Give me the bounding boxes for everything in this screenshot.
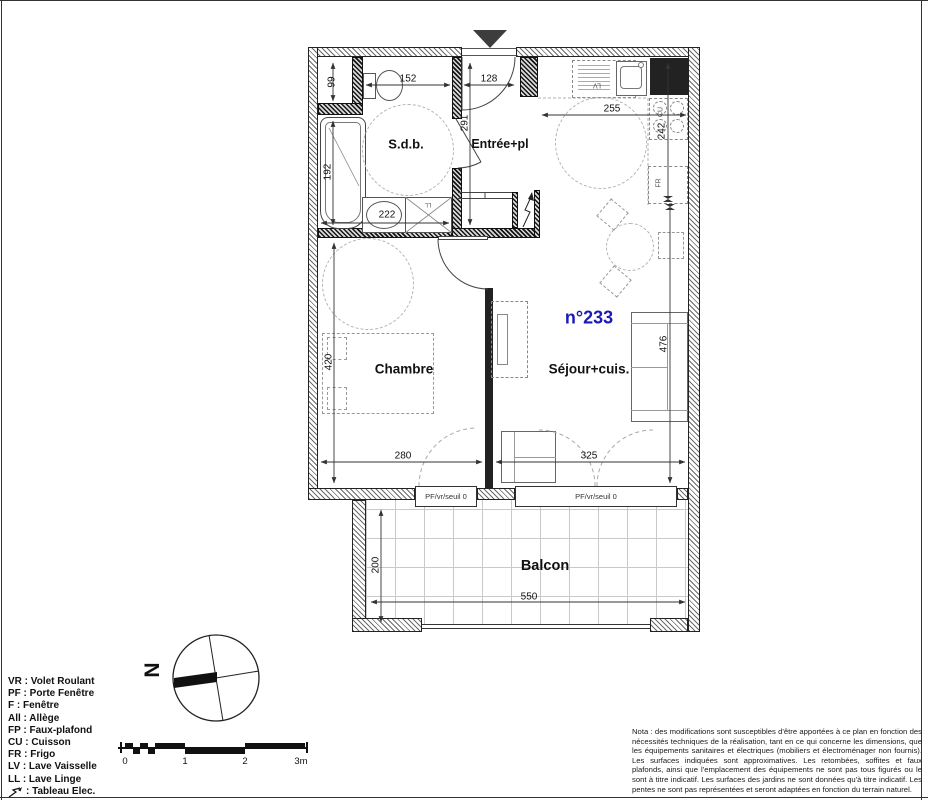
kitchen-tap — [638, 62, 644, 68]
armchair-seat-line — [514, 457, 556, 458]
entrance-marker-triangle — [473, 30, 507, 48]
dim-balcon-depth: 200 — [371, 557, 382, 574]
window-living-label: PF/vr/seuil 0 — [575, 492, 617, 501]
bathroom-entry-wall-lower — [452, 168, 462, 233]
electrical-panel-icon — [523, 197, 531, 227]
dim-baignoire: 192 — [323, 164, 334, 181]
frame-right — [921, 0, 922, 800]
dim-sdb-lower-width: 222 — [379, 210, 396, 221]
compass-cross-line — [209, 635, 223, 721]
cooktop-label: CU — [658, 107, 665, 117]
north-compass — [173, 635, 259, 721]
scale-bar-block — [245, 743, 305, 749]
wall-top-right — [516, 47, 700, 57]
unit-number: n°233 — [565, 308, 613, 329]
elec-niche-wall-right — [534, 190, 540, 238]
legend-item: F : Fenêtre — [8, 700, 97, 712]
dim-niche: 99 — [327, 76, 338, 87]
sofa-cushion-line — [631, 367, 667, 368]
wall-right — [688, 47, 700, 632]
room-label-living: Séjour+cuis. — [549, 362, 630, 377]
compass-cross-line — [173, 671, 259, 685]
frame-left — [1, 0, 2, 800]
burner-icon — [670, 101, 684, 115]
balcony-railing — [422, 624, 650, 629]
living-turning-circle — [555, 97, 647, 189]
balcony-wall-left — [352, 500, 366, 632]
scale-bar-block — [133, 748, 141, 754]
legend-item: CU : Cuisson — [8, 737, 97, 749]
scale-label-3m: 3m — [294, 756, 307, 767]
dim-sejour-width: 325 — [581, 451, 598, 462]
dim-cuisine-depth: 242 — [657, 123, 668, 140]
dim-balcon-width: 550 — [521, 592, 538, 603]
room-label-entrance: Entrée+pl — [471, 137, 528, 151]
washing-machine-label: LL — [425, 201, 432, 207]
scale-bar-block — [185, 748, 245, 754]
compass-north-pointer — [174, 672, 217, 688]
scale-label-1: 1 — [182, 756, 187, 767]
scale-label-2: 2 — [242, 756, 247, 767]
tableau-elec-icon — [8, 786, 24, 798]
legend-item: FR : Frigo — [8, 749, 97, 761]
legend: VR : Volet Roulant PF : Porte Fenêtre F … — [8, 676, 97, 798]
dim-cuisine-width: 255 — [604, 104, 621, 115]
legend-item: FP : Faux-plafond — [8, 725, 97, 737]
duct-niche-wall-bottom — [318, 103, 363, 115]
wall-left — [308, 47, 318, 500]
fridge-box — [648, 166, 688, 204]
balcony-wall-bottom-right — [650, 618, 688, 632]
legend-item-tableau: : Tableau Elec. — [8, 786, 97, 798]
kitchen-duct-block — [650, 58, 688, 95]
wall-top-left — [308, 47, 462, 57]
nota-text: Nota : des modifications sont susceptibl… — [632, 727, 922, 794]
legend-item: LL : Lave Linge — [8, 774, 97, 786]
frame-top — [0, 0, 928, 1]
pillow — [327, 387, 347, 410]
dining-chair — [658, 232, 684, 259]
door-swings — [438, 57, 515, 289]
dim-sejour-depth: 476 — [659, 336, 670, 353]
window-living: PF/vr/seuil 0 — [515, 486, 677, 507]
floor-plan-sheet: PF/vr/seuil 0 PF/vr/seuil 0 — [0, 0, 928, 800]
dishwasher-label: LV — [593, 82, 601, 89]
frame-bottom — [0, 797, 928, 798]
duct-niche-wall-right — [352, 57, 363, 107]
scale-bar-tick — [306, 742, 308, 753]
legend-item: LV : Lave Vaisselle — [8, 761, 97, 773]
legend-item: All : Allège — [8, 713, 97, 725]
living-window-arc-right — [597, 430, 653, 486]
bedroom-door-leaf — [438, 236, 488, 240]
dim-entree-width: 128 — [481, 74, 498, 85]
entry-kitchen-stub-wall — [520, 57, 538, 97]
scale-bar-tick — [120, 742, 122, 753]
dim-chambre-depth: 420 — [324, 354, 335, 371]
scale-bar-block — [125, 743, 133, 749]
compass-circle — [173, 635, 259, 721]
scale-bar-block — [148, 748, 156, 754]
entrance-threshold — [462, 48, 516, 56]
legend-item: PF : Porte Fenêtre — [8, 688, 97, 700]
bedroom-window-arc — [419, 428, 477, 486]
dim-bowtie-marker — [665, 204, 675, 210]
scale-label-0: 0 — [122, 756, 127, 767]
scale-bar-block — [140, 743, 148, 749]
room-label-bathroom: S.d.b. — [388, 137, 423, 152]
kitchen-sink-basin — [620, 66, 642, 89]
sofa-armrest-line — [631, 323, 688, 324]
closet-divider-wall — [512, 192, 518, 228]
room-label-balcony: Balcon — [521, 558, 569, 574]
window-bedroom: PF/vr/seuil 0 — [415, 486, 477, 507]
dim-sdb-width: 152 — [400, 74, 417, 85]
closet-shelf — [458, 192, 512, 199]
room-label-bedroom: Chambre — [375, 362, 434, 377]
bathroom-entry-wall-upper — [452, 57, 462, 119]
wc-tank — [363, 73, 376, 99]
sofa-armrest-line — [631, 410, 688, 411]
window-bedroom-label: PF/vr/seuil 0 — [425, 492, 467, 501]
legend-item-tableau-label: : Tableau Elec. — [26, 786, 95, 798]
burner-icon — [670, 119, 684, 133]
scale-bar-block — [155, 743, 185, 749]
compass-north-letter: N — [141, 662, 165, 677]
dim-chambre-width: 280 — [395, 451, 412, 462]
tv-screen — [497, 314, 508, 365]
bedroom-door-arc — [438, 239, 488, 289]
legend-item: VR : Volet Roulant — [8, 676, 97, 688]
fridge-label: FR — [656, 178, 663, 187]
bedroom-turning-circle — [322, 238, 414, 330]
wall-bottom-seg3 — [677, 488, 688, 500]
wall-bottom-seg2 — [477, 488, 515, 500]
balcony-wall-bottom-left — [352, 618, 422, 632]
wall-bottom-seg1 — [308, 488, 415, 500]
dim-entree-depth: 291 — [460, 115, 471, 132]
